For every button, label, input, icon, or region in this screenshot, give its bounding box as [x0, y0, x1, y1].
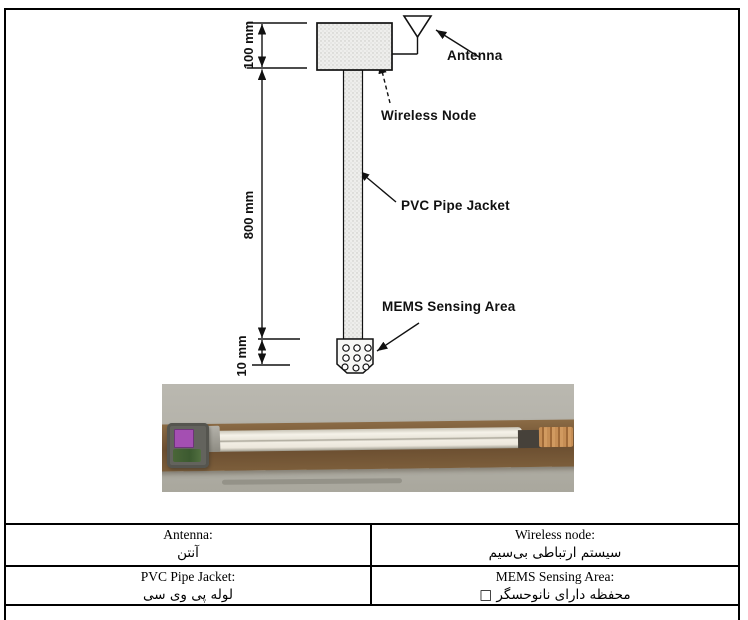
antenna-triangle: [404, 16, 431, 37]
pvc-pipe-label: PVC Pipe Jacket: [401, 198, 510, 213]
wireless-node-box: [317, 23, 392, 70]
concrete-mark: [222, 478, 402, 485]
prototype-photo: [162, 384, 574, 492]
wireless-node-term-en: Wireless node:: [376, 527, 734, 543]
dim-label-10mm: 10 mm: [234, 324, 250, 388]
antenna-term-fa: آنتن: [10, 545, 366, 561]
mems-term-fa: محفظه دارای نانوحسگر □: [376, 587, 734, 603]
dim-label-800mm: 800 mm: [241, 183, 257, 247]
mems-term-en: MEMS Sensing Area:: [376, 569, 734, 585]
wireless-node-label: Wireless Node: [381, 108, 477, 123]
document-page: 100 mm 800 mm 10 mm Antenna Wireless Nod…: [0, 0, 748, 620]
antenna-label: Antenna: [447, 48, 502, 63]
pipe-dark-segment: [518, 430, 541, 448]
antenna-feed-line: [392, 37, 418, 54]
pvc-pointer-arrow: [359, 171, 396, 202]
mems-area-label: MEMS Sensing Area: [382, 299, 515, 314]
pvc-term-en: PVC Pipe Jacket:: [10, 569, 366, 585]
copper-sensing-tip: [539, 427, 573, 447]
antenna-term-en: Antenna:: [10, 527, 366, 543]
cell-mems: MEMS Sensing Area: محفظه دارای نانوحسگر …: [372, 567, 738, 604]
legend-table: Antenna: آنتن Wireless node: سیستم ارتبا…: [4, 523, 740, 606]
pvc-pipes: [206, 427, 522, 452]
wireless-node-term-fa: سیستم ارتباطی بی‌سیم: [376, 545, 734, 561]
mems-pointer-arrow: [377, 323, 419, 351]
cell-pvc: PVC Pipe Jacket: لوله پی وی سی: [6, 567, 372, 604]
green-pcb: [173, 449, 201, 462]
mems-tip-holes: [342, 345, 371, 371]
pvc-pipe-shape: [344, 70, 363, 339]
table-row: PVC Pipe Jacket: لوله پی وی سی MEMS Sens…: [6, 567, 738, 606]
cell-antenna: Antenna: آنتن: [6, 525, 372, 565]
table-row: Antenna: آنتن Wireless node: سیستم ارتبا…: [6, 525, 738, 567]
cell-wireless-node: Wireless node: سیستم ارتباطی بی‌سیم: [372, 525, 738, 565]
dim-label-100mm: 100 mm: [241, 13, 257, 77]
wireless-node-enclosure: [167, 423, 209, 468]
purple-chip: [174, 429, 194, 448]
pvc-term-fa: لوله پی وی سی: [10, 587, 366, 603]
